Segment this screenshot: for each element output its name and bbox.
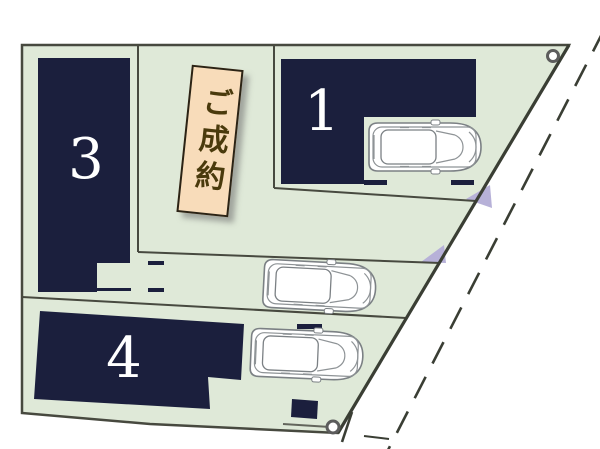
site-plan-drawing bbox=[0, 0, 600, 449]
lot-4-label: 4 bbox=[106, 331, 142, 387]
survey-point-icon bbox=[548, 51, 559, 62]
sold-banner-text: ご成約 bbox=[182, 84, 237, 199]
road-mark bbox=[364, 436, 389, 439]
tick-mark bbox=[451, 180, 474, 185]
car-top-view-icon bbox=[262, 256, 377, 316]
tick-mark bbox=[97, 288, 131, 291]
car-top-view-icon bbox=[369, 120, 481, 174]
tick-mark bbox=[148, 261, 164, 265]
tick-mark bbox=[364, 180, 387, 185]
tick-mark bbox=[148, 288, 164, 292]
lot-1-label: 1 bbox=[304, 84, 340, 140]
lot-3-label: 3 bbox=[68, 132, 104, 188]
survey-point-icon bbox=[327, 421, 339, 433]
car-top-view-icon bbox=[250, 325, 364, 384]
utility-square bbox=[291, 399, 318, 419]
site-plan: ご成約 1 3 4 bbox=[0, 0, 600, 449]
